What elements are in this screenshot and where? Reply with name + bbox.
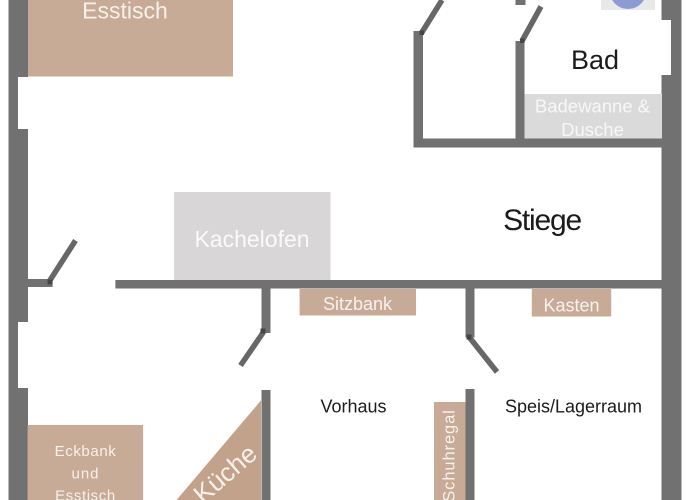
svg-text:Schuhregal: Schuhregal	[441, 409, 459, 500]
svg-text:Esstisch: Esstisch	[55, 488, 116, 500]
svg-text:Vorhaus: Vorhaus	[320, 397, 386, 417]
svg-text:Sitzbank: Sitzbank	[323, 294, 393, 314]
svg-text:Esstisch: Esstisch	[82, 0, 168, 24]
svg-text:und: und	[71, 466, 99, 483]
svg-text:Bad: Bad	[571, 45, 619, 75]
svg-text:Kachelofen: Kachelofen	[194, 226, 309, 252]
svg-text:Badewanne &: Badewanne &	[535, 96, 651, 117]
svg-text:Speis/Lagerraum: Speis/Lagerraum	[505, 397, 642, 417]
svg-text:Stiege: Stiege	[503, 204, 581, 237]
svg-text:Eckbank: Eckbank	[55, 443, 117, 460]
svg-text:Kasten: Kasten	[543, 296, 599, 316]
svg-text:Dusche: Dusche	[561, 119, 624, 140]
